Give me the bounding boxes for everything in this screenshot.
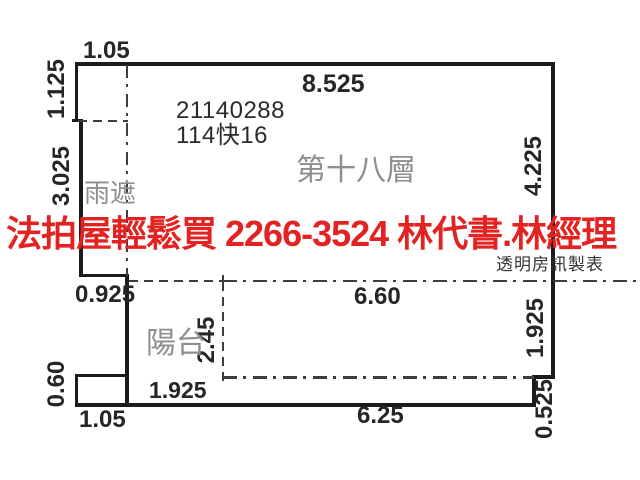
dim-bottom-right-step-height: 0.525 <box>533 379 557 439</box>
dim-canopy-bottom-width: 0.925 <box>75 283 135 307</box>
case-code: 114快16 <box>176 124 268 148</box>
dimension-tick-top <box>222 275 224 285</box>
dim-left-canopy-height: 3.025 <box>50 146 74 206</box>
dim-left-upper-height: 1.125 <box>45 59 69 119</box>
balcony-depth-dash-line <box>222 282 224 377</box>
canopy-top-dash-line <box>78 120 128 122</box>
wall-bottom <box>75 403 536 407</box>
case-number: 21140288 <box>176 99 285 123</box>
dim-balcony-left-width: 1.925 <box>149 379 207 402</box>
room-label-floor-18: 第十八層 <box>296 156 416 186</box>
wall-left-upper <box>75 62 78 121</box>
wall-top <box>75 62 555 66</box>
balcony-bottom-dashdot-line <box>223 376 534 379</box>
dim-top-left-width: 1.05 <box>83 39 130 63</box>
room-label-rain-canopy: 雨遮 <box>84 180 136 206</box>
wall-canopy-bottom <box>79 274 129 277</box>
credit-text: 透明房訊製表 <box>496 256 604 273</box>
dim-balcony-bottom-width: 6.25 <box>357 404 404 428</box>
dimension-tick-bottom <box>222 372 224 381</box>
dim-right-height: 4.225 <box>522 136 546 196</box>
balcony-top-dashdot-right <box>223 280 638 282</box>
balcony-top-dash-left <box>129 280 223 282</box>
wall-box-left <box>75 374 78 407</box>
dim-balcony-right-height: 1.925 <box>524 298 548 358</box>
dim-balcony-top-width: 6.60 <box>354 285 401 309</box>
dim-bottom-left-box-width: 1.05 <box>79 408 126 432</box>
floor-plan: 1.05 8.525 1.125 3.025 4.225 0.925 6.60 … <box>0 0 640 480</box>
dim-bottom-left-box-height: 0.60 <box>45 361 69 408</box>
wall-box-top <box>75 374 128 377</box>
dim-top-width: 8.525 <box>302 72 365 97</box>
room-label-balcony: 陽台 <box>146 329 206 359</box>
watermark-text: 法拍屋輕鬆買 2266-3524 林代書.林經理 <box>6 216 616 252</box>
